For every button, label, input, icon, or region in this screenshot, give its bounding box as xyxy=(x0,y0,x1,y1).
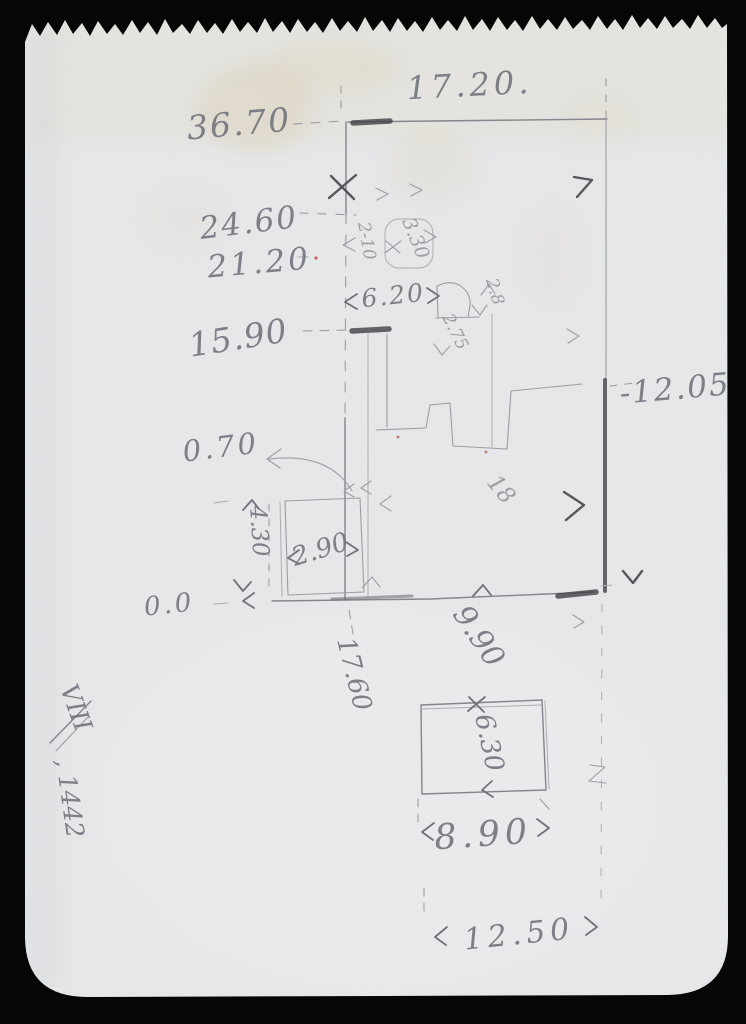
label-dim-4-30: 4.30 xyxy=(244,504,274,558)
sketch-canvas: 17.20. 36.70 24.60 21.20 15.90 0.70 0.0 … xyxy=(0,0,746,1024)
photo-of-sketch: 17.20. 36.70 24.60 21.20 15.90 0.70 0.0 … xyxy=(0,0,746,1024)
level-15-90-thick-mark xyxy=(352,329,389,331)
red-speck xyxy=(485,451,488,454)
red-speck xyxy=(397,436,400,439)
label-dim-8-90: 8.90 xyxy=(433,812,533,859)
red-speck xyxy=(314,256,317,259)
label-width-top: 17.20. xyxy=(406,63,534,108)
paper-texture xyxy=(25,12,727,1012)
top-edge-thick-mark xyxy=(353,121,390,123)
label-level-0-0: 0.0 xyxy=(143,587,196,622)
paper-stains xyxy=(25,12,727,1012)
